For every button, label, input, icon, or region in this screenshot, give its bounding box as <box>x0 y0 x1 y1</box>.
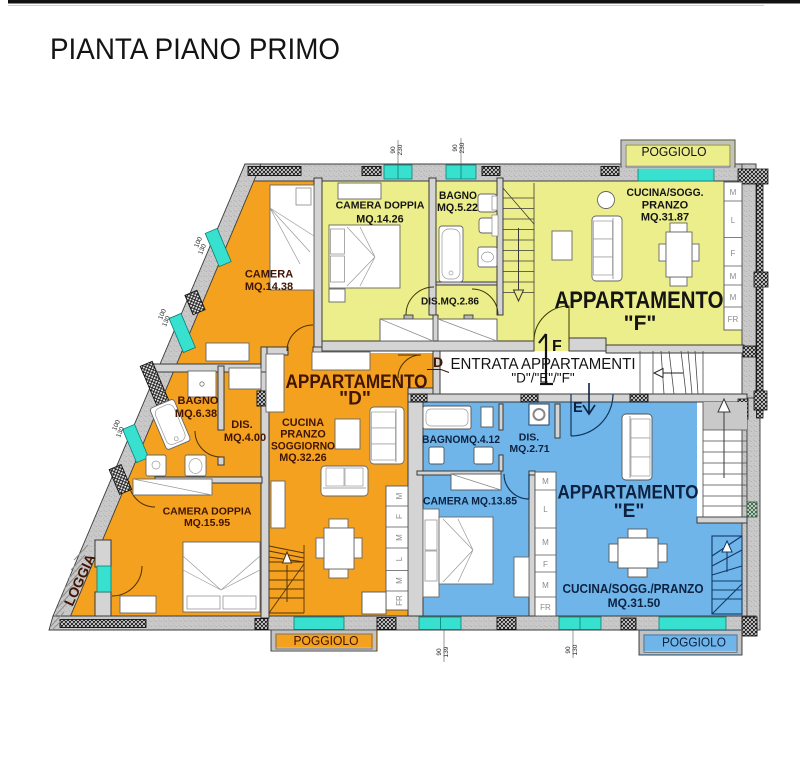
svg-text:CUCINA: CUCINA <box>282 417 324 429</box>
svg-text:F: F <box>395 514 404 519</box>
svg-text:"F": "F" <box>624 312 657 335</box>
svg-text:CAMERA: CAMERA <box>245 269 293 281</box>
svg-text:APPARTAMENTO: APPARTAMENTO <box>555 287 724 314</box>
svg-text:L: L <box>543 505 548 514</box>
svg-text:L: L <box>731 216 736 225</box>
svg-text:MQ.14.26: MQ.14.26 <box>356 214 403 226</box>
svg-text:CAMERA DOPPIA: CAMERA DOPPIA <box>336 200 425 212</box>
svg-text:CUCINA/SOGG./PRANZO: CUCINA/SOGG./PRANZO <box>563 582 704 596</box>
svg-text:SOGGIORNO: SOGGIORNO <box>271 441 335 453</box>
svg-text:FR: FR <box>540 603 551 612</box>
svg-text:M: M <box>542 538 549 547</box>
svg-text:F: F <box>543 560 548 569</box>
svg-text:MQ.31.87: MQ.31.87 <box>641 212 689 224</box>
svg-text:MQ.32.26: MQ.32.26 <box>279 452 326 464</box>
svg-text:DIS.MQ.2.86: DIS.MQ.2.86 <box>421 296 479 308</box>
svg-text:FR: FR <box>395 595 404 606</box>
svg-text:F: F <box>731 249 736 258</box>
svg-text:PIANTA PIANO PRIMO: PIANTA PIANO PRIMO <box>50 33 340 66</box>
svg-text:MQ.15.95: MQ.15.95 <box>184 517 230 529</box>
svg-text:M: M <box>730 272 737 281</box>
svg-text:90: 90 <box>436 648 443 656</box>
svg-text:PRANZO: PRANZO <box>642 200 689 212</box>
svg-text:F: F <box>552 338 562 355</box>
svg-text:90: 90 <box>390 146 397 154</box>
svg-text:BAGNO: BAGNO <box>439 190 477 202</box>
svg-text:MQ.6.38: MQ.6.38 <box>175 408 217 420</box>
svg-text:FR: FR <box>728 315 739 324</box>
svg-text:DIS.: DIS. <box>231 419 252 431</box>
svg-text:POGGIOLO: POGGIOLO <box>662 636 726 650</box>
svg-text:MQ.5.22: MQ.5.22 <box>437 202 478 214</box>
svg-text:MQ.4.00: MQ.4.00 <box>224 432 266 444</box>
svg-text:POGGIOLO: POGGIOLO <box>294 633 359 648</box>
svg-text:230: 230 <box>459 142 466 153</box>
svg-text:"D": "D" <box>339 389 371 410</box>
svg-text:BAGNO: BAGNO <box>178 395 219 407</box>
svg-text:M: M <box>395 577 404 584</box>
svg-text:CAMERA DOPPIA: CAMERA DOPPIA <box>163 506 252 518</box>
svg-text:MQ.2.71: MQ.2.71 <box>509 443 549 455</box>
svg-text:"E": "E" <box>614 501 645 522</box>
svg-text:90: 90 <box>565 646 572 654</box>
svg-text:M: M <box>395 492 404 499</box>
svg-text:E: E <box>573 400 583 416</box>
svg-text:CAMERA MQ.13.85: CAMERA MQ.13.85 <box>423 496 517 508</box>
svg-text:PRANZO: PRANZO <box>280 429 326 441</box>
svg-text:90: 90 <box>452 144 459 152</box>
svg-text:M: M <box>542 477 549 486</box>
svg-text:L: L <box>395 556 404 561</box>
svg-text:M: M <box>395 534 404 541</box>
svg-text:M: M <box>730 293 737 302</box>
svg-text:MQ.14.38: MQ.14.38 <box>245 281 293 293</box>
svg-text:CUCINA/SOGG.: CUCINA/SOGG. <box>627 187 704 199</box>
svg-text:MQ.31.50: MQ.31.50 <box>608 596 661 610</box>
svg-text:D: D <box>433 354 443 370</box>
svg-text:DIS.: DIS. <box>519 432 540 444</box>
svg-text:M: M <box>542 581 549 590</box>
svg-text:M: M <box>730 188 737 197</box>
svg-text:BAGNOMQ.4.12: BAGNOMQ.4.12 <box>422 434 500 446</box>
svg-text:POGGIOLO: POGGIOLO <box>642 144 707 159</box>
